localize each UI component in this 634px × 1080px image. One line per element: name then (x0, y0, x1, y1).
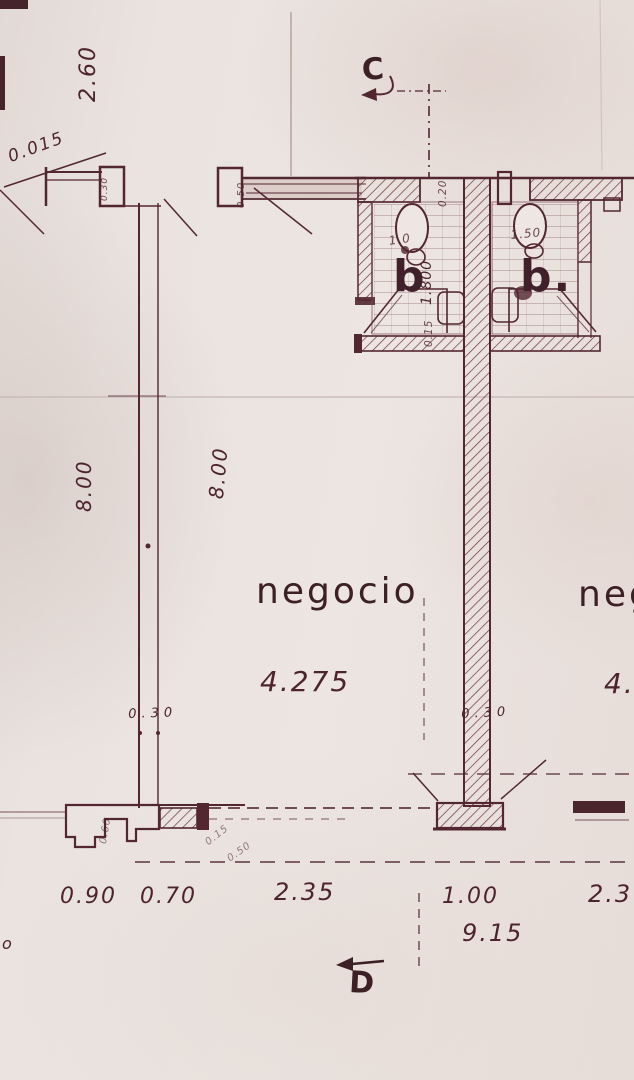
dim-090-label: 0.90 (60, 886, 117, 908)
right-shop-name: neg (578, 577, 634, 613)
dim-toilet-left-label: 1.0 (388, 232, 412, 247)
dim-bath-015-label: 0.15 (424, 320, 435, 347)
section-c-marker: C (361, 54, 387, 86)
dim-column-b-label: 0.50 (237, 182, 247, 208)
fixture-left (438, 292, 464, 324)
dim-070-label: 0.70 (140, 886, 197, 908)
dim-235-label: 2.35 (274, 880, 335, 904)
right-shop-width: 4.2 (604, 670, 634, 698)
dim-bath-020-label: 0.20 (438, 180, 449, 207)
dim-23-label: 2.3 (588, 882, 632, 906)
plan-linework (0, 0, 634, 1080)
floor-plan-sheet: 2.60 0.015 0.30 0.50 C 0.20 1.800 0.15 1… (0, 0, 634, 1080)
left-shop-width: 4.275 (260, 668, 350, 696)
dim-column-a-label: 0.30 (101, 177, 110, 201)
dim-2-60-label: 2.60 (78, 45, 100, 102)
dim-toilet-right-label: 1.50 (510, 226, 542, 241)
left-shop-name: negocio (256, 574, 419, 610)
bathroom-right-label: b. (520, 255, 572, 299)
corner-o-mark: o (2, 936, 14, 952)
section-c-line (361, 76, 446, 178)
section-d-marker: D (348, 968, 376, 999)
dim-915-label: 9.15 (462, 921, 523, 945)
dim-left-wall-thickness: 0.30 (128, 706, 177, 721)
dim-800-right-label: 8.00 (206, 446, 231, 500)
dashed-reference-lines (135, 598, 634, 966)
edge-ink-marks (0, 0, 28, 110)
dim-center-wall-thickness: 0.30 (461, 705, 511, 721)
dim-800-left-label: 8.00 (74, 459, 94, 512)
bathroom-left-label: b (393, 255, 427, 299)
right-footing (573, 801, 629, 820)
dim-100-label: 1.00 (442, 886, 499, 908)
